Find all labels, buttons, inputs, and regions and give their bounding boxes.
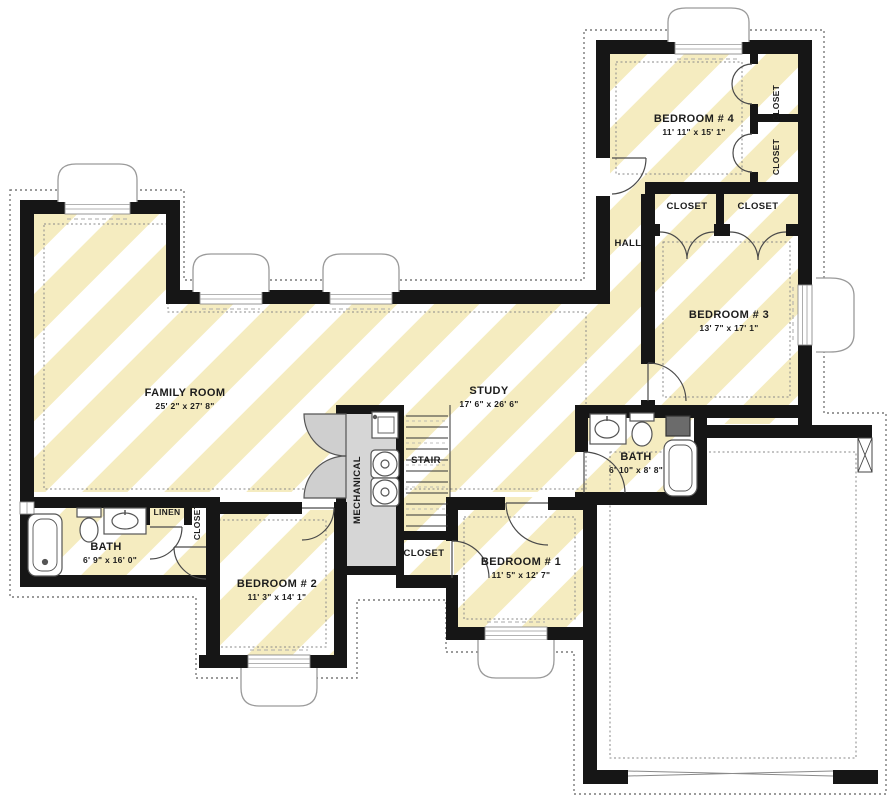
room-dims-bath-main: 6' 9" x 16' 0" [83, 555, 137, 565]
room-dims-family-room: 25' 2" x 27' 8" [155, 401, 214, 411]
well-bedroom-3 [816, 278, 854, 352]
room-dims-bedroom-1: 11' 5" x 12' 7" [492, 570, 551, 580]
well-family-room-3 [323, 254, 399, 292]
room-dims-study: 17' 6" x 26' 6" [459, 399, 518, 409]
window-bath-main [20, 502, 34, 514]
room-label-bedroom-2: BEDROOM # 2 [237, 578, 317, 590]
hall-label: HALL [615, 238, 642, 249]
well-family-room-2 [193, 254, 269, 292]
furnace [371, 478, 399, 506]
closet-label-understair: CLOSET [404, 548, 445, 559]
window-unfinished-x [858, 438, 872, 472]
sink-main [104, 508, 146, 534]
utility-sink [372, 412, 398, 438]
stair-label: STAIR [411, 455, 441, 466]
bath2-shelf [666, 416, 690, 436]
well-bedroom-4 [668, 8, 749, 42]
closet-label-hall-right: CLOSET [738, 201, 779, 212]
mechanical-label: MECHANICAL [352, 456, 363, 524]
room-label-bedroom-1: BEDROOM # 1 [481, 556, 561, 568]
room-label-study: STUDY [469, 385, 509, 397]
room-dims-bath-2: 6' 10" x 8' 8" [609, 465, 663, 475]
well-family-room-1 [58, 164, 137, 202]
linen-label: LINEN [154, 507, 181, 517]
bathtub-main [28, 514, 62, 576]
closet-label-bedroom4-top: CLOSET [771, 84, 781, 121]
floor-plan-svg: FAMILY ROOM 25' 2" x 27' 8" STUDY 17' 6"… [0, 0, 892, 800]
room-label-bedroom-4: BEDROOM # 4 [654, 113, 735, 125]
toilet-bath2 [630, 413, 654, 446]
sink-bath2 [590, 414, 626, 444]
room-label-family-room: FAMILY ROOM [145, 387, 226, 399]
closet-label-hallway: CLOSET [192, 503, 202, 540]
room-label-bath-2: BATH [620, 451, 651, 463]
room-label-bath-main: BATH [90, 541, 121, 553]
well-bedroom-1 [478, 640, 554, 678]
bathtub-bath2 [664, 440, 697, 496]
room-label-bedroom-3: BEDROOM # 3 [689, 309, 769, 321]
closet-label-bedroom4-bottom: CLOSET [771, 138, 781, 175]
water-heater [371, 450, 399, 478]
room-dims-bedroom-3: 13' 7" x 17' 1" [699, 323, 758, 333]
closet-label-hall-left: CLOSET [667, 201, 708, 212]
floor-plan-page: FAMILY ROOM 25' 2" x 27' 8" STUDY 17' 6"… [0, 0, 892, 800]
well-bedroom-2 [241, 668, 317, 706]
room-dims-bedroom-2: 11' 3" x 14' 1" [248, 592, 307, 602]
room-dims-bedroom-4: 11' 11" x 15' 1" [662, 127, 725, 137]
